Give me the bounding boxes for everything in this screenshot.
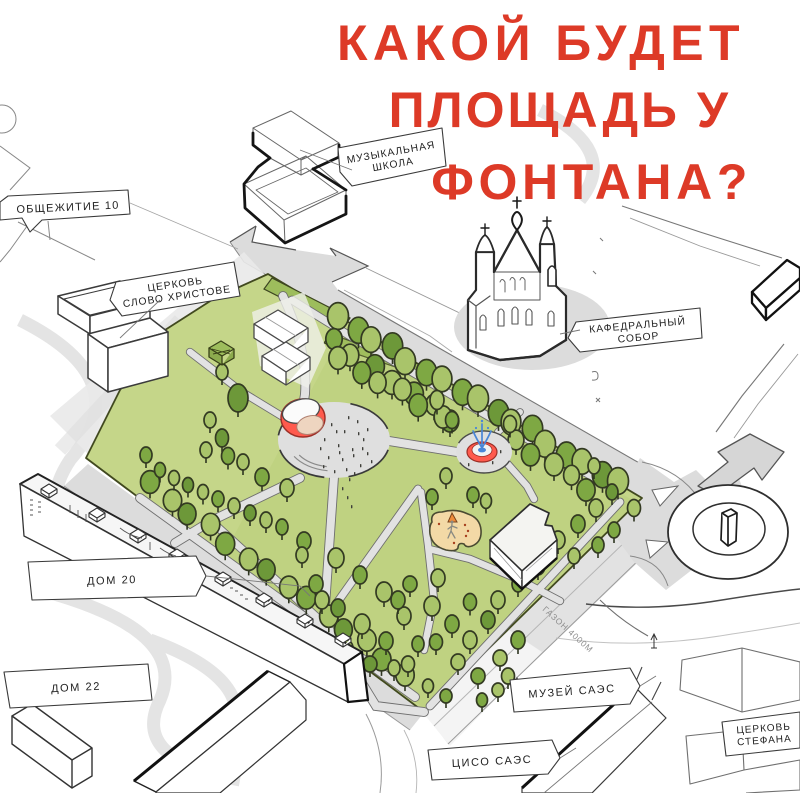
svg-text:КАКОЙ БУДЕТ: КАКОЙ БУДЕТ	[337, 14, 745, 71]
svg-text:ФОНТАНА?: ФОНТАНА?	[431, 154, 752, 210]
svg-text:ДОМ 20: ДОМ 20	[87, 574, 137, 588]
svg-text:ПЛОЩАДЬ У: ПЛОЩАДЬ У	[389, 82, 731, 138]
